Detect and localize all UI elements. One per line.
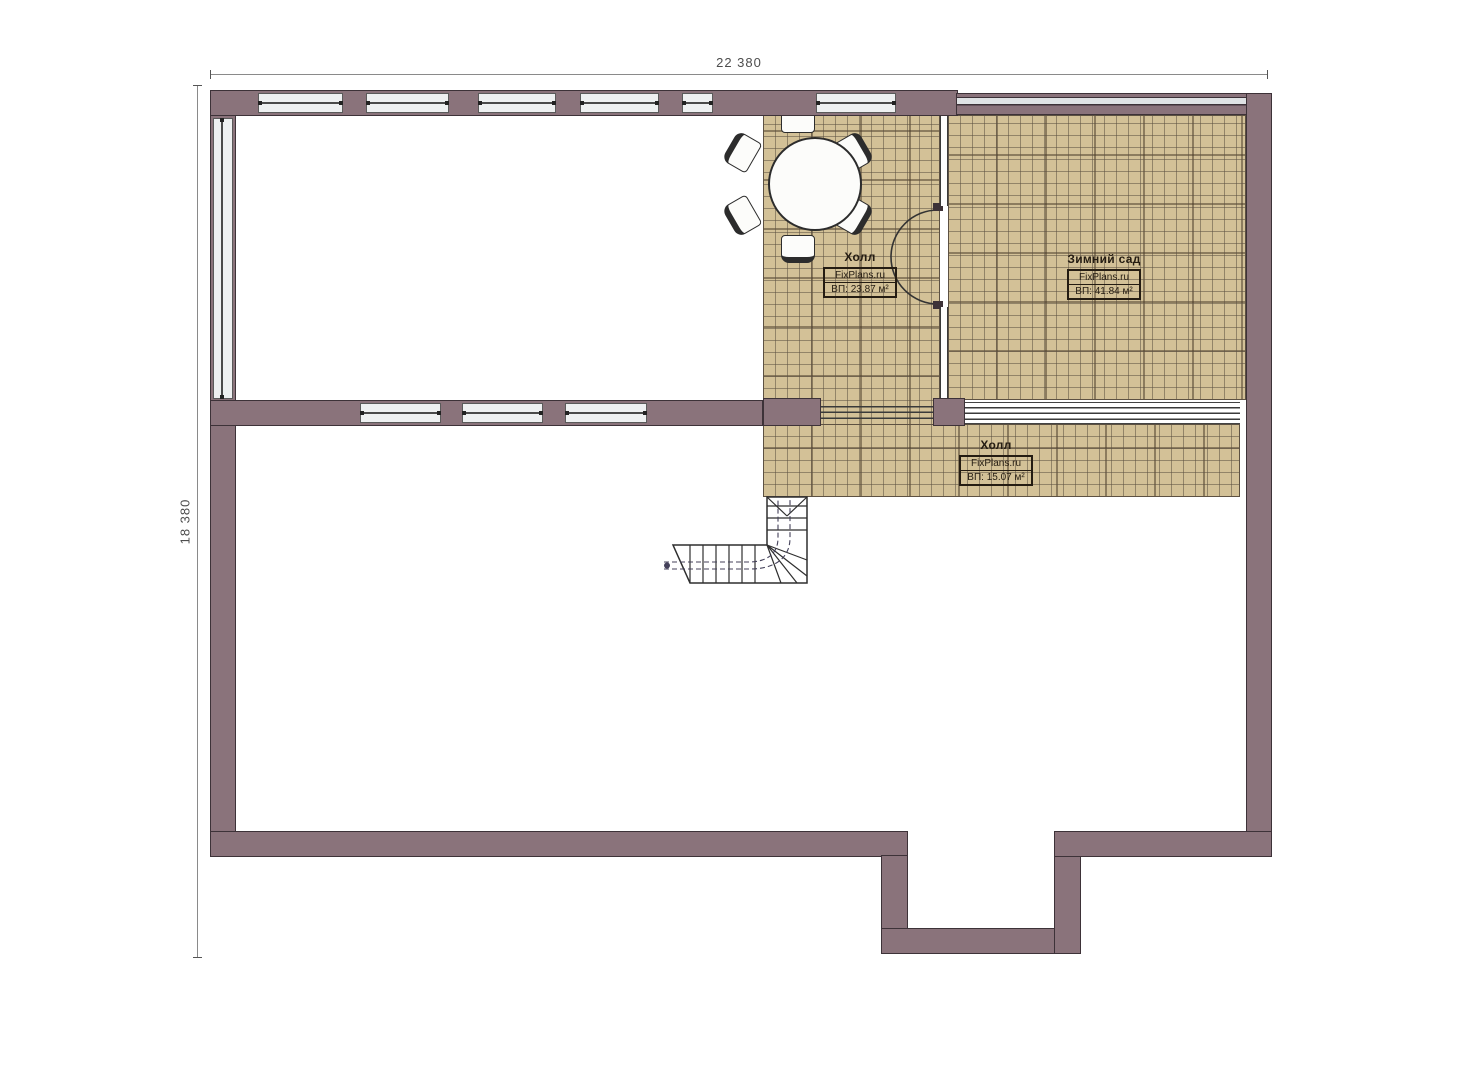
- dimension-top-tick-left: [210, 70, 211, 79]
- chair: [781, 235, 815, 263]
- dimension-top-line: [210, 74, 1268, 75]
- window: [565, 403, 647, 423]
- chair: [721, 130, 762, 173]
- wall-bottom-left: [210, 831, 908, 857]
- room-name: Холл: [812, 250, 908, 264]
- dimension-left-label: 18 380: [178, 467, 193, 577]
- watermark-brand: FixPlans.ru: [1069, 271, 1139, 285]
- dimension-left-tick-bottom: [193, 957, 202, 958]
- room-label-hall-lower: Холл FixPlans.ru ВП: 15.07 м²: [950, 438, 1042, 486]
- room-label-winter-garden: Зимний сад FixPlans.ru ВП: 41.84 м²: [1056, 252, 1152, 300]
- room-name: Зимний сад: [1056, 252, 1152, 266]
- dimension-top-tick-right: [1267, 70, 1268, 79]
- wall-protrusion-right: [1054, 855, 1081, 954]
- round-dining-table: [768, 137, 862, 231]
- glass-partition-lower: [940, 307, 948, 400]
- window: [366, 93, 449, 113]
- window: [816, 93, 896, 113]
- wall-pillar-partition: [933, 398, 965, 426]
- glazing-band-window: [965, 402, 1240, 424]
- room-info-box: FixPlans.ru ВП: 15.07 м²: [959, 455, 1033, 486]
- room-label-hall-upper: Холл FixPlans.ru ВП: 23.87 м²: [812, 250, 908, 298]
- wall-protrusion-bottom: [881, 928, 1081, 954]
- chair: [721, 194, 762, 237]
- glazing-band-over-tiles: [821, 402, 933, 424]
- room-area: ВП: 41.84 м²: [1069, 285, 1139, 298]
- window: [478, 93, 556, 113]
- window: [258, 93, 343, 113]
- window-left-wall: [213, 118, 233, 399]
- watermark-brand: FixPlans.ru: [961, 457, 1031, 471]
- wall-pillar-hall: [763, 398, 821, 426]
- room-area: ВП: 15.07 м²: [961, 471, 1031, 484]
- room-info-box: FixPlans.ru ВП: 23.87 м²: [823, 267, 897, 298]
- wall-right: [1246, 93, 1272, 857]
- window: [580, 93, 659, 113]
- dimension-top-label: 22 380: [210, 55, 1268, 70]
- dimension-left-tick-top: [193, 85, 202, 86]
- wall-winter-garden-glazed-top: [956, 93, 1248, 115]
- window: [462, 403, 543, 423]
- wall-bottom-right: [1054, 831, 1272, 857]
- glass-partition-upper: [940, 115, 948, 206]
- room-area: ВП: 23.87 м²: [825, 283, 895, 296]
- window: [360, 403, 441, 423]
- window: [682, 93, 713, 113]
- dimension-left-line: [197, 85, 198, 958]
- floor-plan-canvas: 22 380 18 380: [0, 0, 1473, 1080]
- room-info-box: FixPlans.ru ВП: 41.84 м²: [1067, 269, 1141, 300]
- watermark-brand: FixPlans.ru: [825, 269, 895, 283]
- staircase: [660, 490, 820, 600]
- room-name: Холл: [950, 438, 1042, 452]
